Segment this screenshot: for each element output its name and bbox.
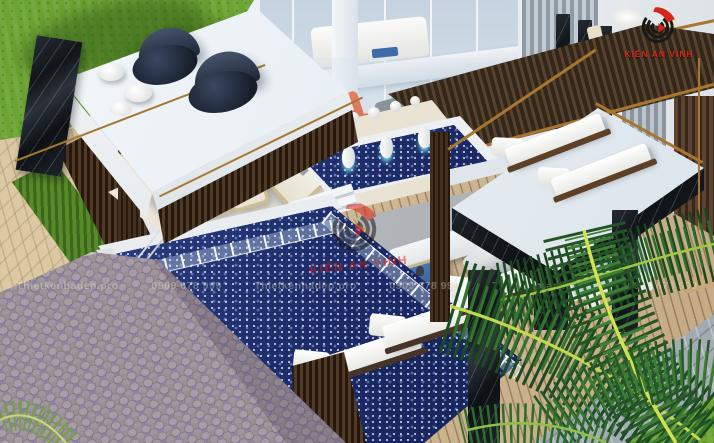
corner-logo-emblem-icon	[612, 6, 706, 48]
villa-render-image: Thietkenhadep.pro 0909 678 999 Thietkenh…	[0, 0, 714, 443]
corner-logo: KIẾN AN VINH	[612, 6, 706, 59]
corner-logo-text: KIẾN AN VINH	[612, 49, 706, 59]
palm-fronds	[0, 0, 714, 443]
